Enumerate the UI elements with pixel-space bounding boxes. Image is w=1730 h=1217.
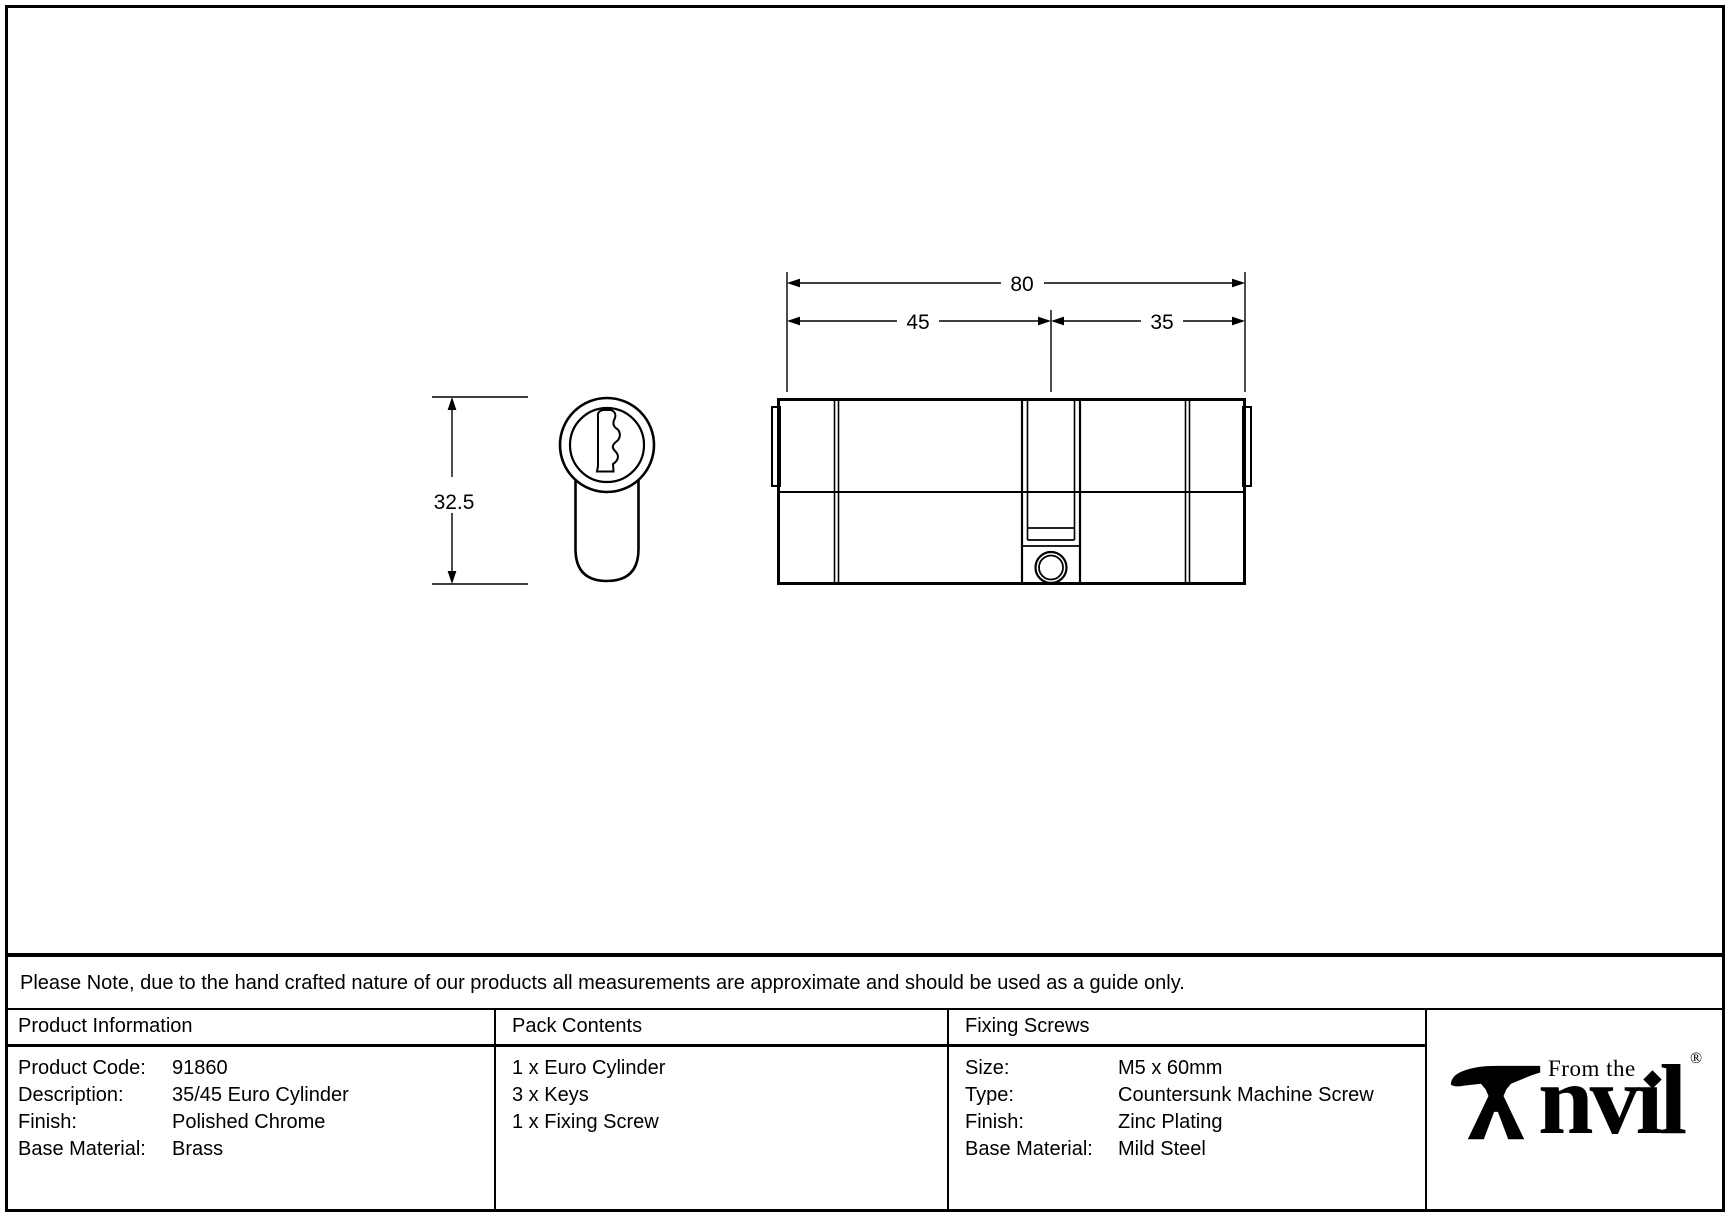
product-information-header: Product Information xyxy=(18,1014,193,1038)
registered-trademark-symbol: ® xyxy=(1690,1050,1702,1068)
cylinder-side-view xyxy=(772,400,1251,584)
logo-brand-text: nvıl xyxy=(1538,1050,1683,1150)
product-code-value: 91860 xyxy=(172,1056,228,1080)
product-code-label: Product Code: xyxy=(18,1056,146,1080)
spec-sheet-page: 80 45 35 32.5 Please Not xyxy=(0,0,1730,1217)
finish-label: Finish: xyxy=(18,1110,77,1134)
dim-label-32-5: 32.5 xyxy=(434,491,475,514)
dim-label-80: 80 xyxy=(1010,273,1033,296)
description-value: 35/45 Euro Cylinder xyxy=(172,1083,349,1107)
header-bottom-border xyxy=(5,1044,1427,1047)
finish-value: Polished Chrome xyxy=(172,1110,325,1134)
dim-arrow xyxy=(1051,317,1064,326)
dim-arrow xyxy=(448,397,457,410)
pack-contents-header: Pack Contents xyxy=(512,1014,642,1038)
pack-item-2: 3 x Keys xyxy=(512,1083,589,1107)
screw-size-label: Size: xyxy=(965,1056,1009,1080)
fixing-screw-hole-outer xyxy=(1036,552,1067,583)
base-material-label: Base Material: xyxy=(18,1137,146,1161)
column-divider-1 xyxy=(494,1008,496,1212)
fixing-screws-header: Fixing Screws xyxy=(965,1014,1089,1038)
dim-label-35: 35 xyxy=(1150,311,1173,334)
screw-finish-label: Finish: xyxy=(965,1110,1024,1134)
cylinder-front-view xyxy=(560,398,654,581)
dim-label-45: 45 xyxy=(906,311,929,334)
screw-type-value: Countersunk Machine Screw xyxy=(1118,1083,1374,1107)
technical-drawing: 80 45 35 32.5 xyxy=(0,0,1730,950)
dim-arrow xyxy=(1038,317,1051,326)
dim-arrow xyxy=(787,317,800,326)
cylinder-front-body xyxy=(576,478,639,581)
dim-arrow xyxy=(1232,317,1245,326)
screw-base-material-label: Base Material: xyxy=(965,1137,1093,1161)
dim-arrow xyxy=(787,279,800,288)
anvil-icon xyxy=(1449,1062,1543,1144)
column-divider-3 xyxy=(1425,1008,1427,1212)
dim-arrow xyxy=(448,571,457,584)
screw-finish-value: Zinc Plating xyxy=(1118,1110,1223,1134)
screw-base-material-value: Mild Steel xyxy=(1118,1137,1206,1161)
screw-type-label: Type: xyxy=(965,1083,1014,1107)
pack-item-1: 1 x Euro Cylinder xyxy=(512,1056,665,1080)
description-label: Description: xyxy=(18,1083,124,1107)
pack-item-3: 1 x Fixing Screw xyxy=(512,1110,659,1134)
table-top-border xyxy=(5,1008,1725,1010)
base-material-value: Brass xyxy=(172,1137,223,1161)
column-divider-2 xyxy=(947,1008,949,1212)
note-top-border xyxy=(5,953,1725,957)
screw-size-value: M5 x 60mm xyxy=(1118,1056,1222,1080)
note-text: Please Note, due to the hand crafted nat… xyxy=(20,971,1185,995)
dim-arrow xyxy=(1232,279,1245,288)
anvil-shape xyxy=(1451,1066,1540,1139)
